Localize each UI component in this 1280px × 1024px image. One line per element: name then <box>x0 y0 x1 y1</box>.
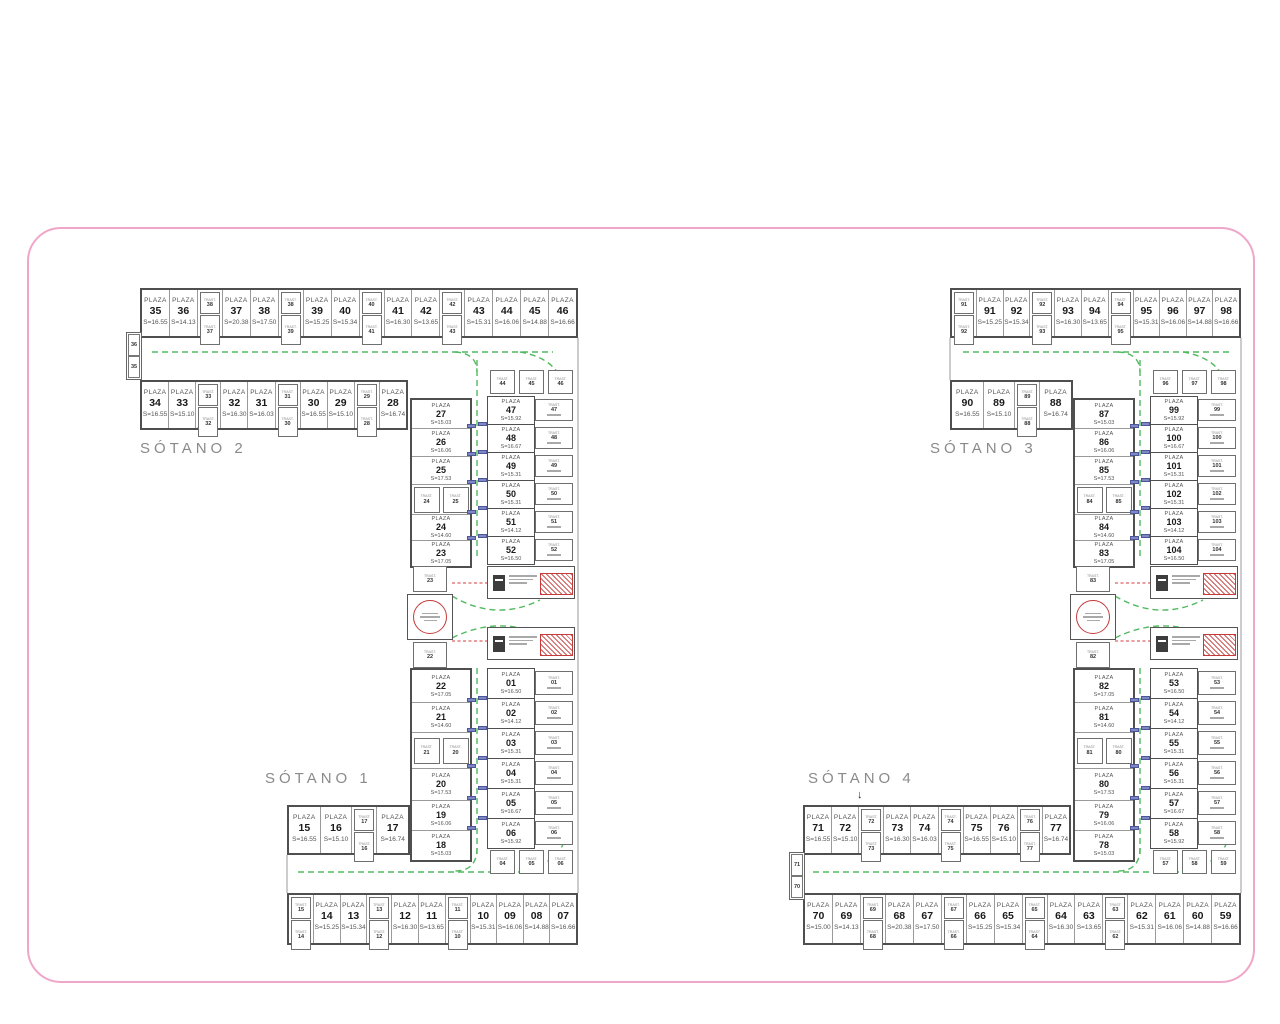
door-marker <box>1130 728 1139 732</box>
plaza-area: S=14.60 <box>431 533 452 539</box>
parking-space: PLAZA84S=14.60 <box>1075 514 1133 540</box>
storage-cell: TRAST.38TRAST.39 <box>278 290 303 336</box>
plaza-area: S=16.55 <box>292 836 316 843</box>
illegible-text <box>547 498 561 500</box>
storage-box: TRAST.32 <box>198 407 218 437</box>
plaza-area: S=15.25 <box>315 924 339 931</box>
parking-space: PLAZA50S=15.31 <box>487 480 535 509</box>
plaza-number: 37 <box>230 306 242 317</box>
parking-space: PLAZA86S=16.06 <box>1075 428 1133 456</box>
plaza-number: 12 <box>399 911 411 922</box>
plaza-number: 38 <box>258 306 270 317</box>
plaza-number: 13 <box>348 911 360 922</box>
parking-space: PLAZA04S=15.31 <box>487 758 535 789</box>
plaza-number: 42 <box>420 306 432 317</box>
plaza-word: PLAZA <box>1045 814 1068 821</box>
plaza-area: S=17.05 <box>1094 559 1115 565</box>
door-marker <box>478 506 487 510</box>
plaza-word: PLAZA <box>969 902 992 909</box>
parking-space: PLAZA44S=16.06 <box>492 290 520 336</box>
plaza-area: S=15.03 <box>1094 420 1115 426</box>
plaza-word: PLAZA <box>420 902 443 909</box>
illegible-text <box>1085 613 1101 615</box>
illegible-text <box>547 687 561 689</box>
illegible-text <box>1210 414 1224 416</box>
trast-number: 38 <box>288 302 294 308</box>
storage-box: TRAST.73 <box>861 832 881 862</box>
storage-box: TRAST.93 <box>1032 315 1052 345</box>
plaza-number: 87 <box>1099 410 1109 419</box>
plaza-area: S=17.50 <box>915 924 939 931</box>
parking-row: PLAZA71S=16.55PLAZA72S=15.10TRAST.72TRAS… <box>803 805 1071 855</box>
trast-number: 14 <box>298 934 304 940</box>
parking-space: PLAZA94S=13.65 <box>1081 290 1108 336</box>
plaza-area: S=16.30 <box>885 836 909 843</box>
storage-box: TRAST.95 <box>1111 315 1131 345</box>
storage-box: TRAST.104 <box>1198 539 1236 561</box>
trast-number: 74 <box>948 819 954 825</box>
plaza-area: S=16.06 <box>1161 319 1185 326</box>
plaza-word: PLAZA <box>1095 403 1114 409</box>
parking-space: TRAST.21TRAST.20 <box>412 732 470 768</box>
plaza-word: PLAZA <box>835 902 858 909</box>
storage-box: TRAST.88 <box>1017 407 1037 437</box>
trast-number: 69 <box>870 907 876 913</box>
plaza-number: 51 <box>506 518 516 527</box>
plaza-area: S=16.74 <box>381 411 405 418</box>
trast-number: 62 <box>1112 934 1118 940</box>
door-marker <box>467 698 476 702</box>
illegible-text <box>1083 616 1103 618</box>
plaza-area: S=13.65 <box>419 924 443 931</box>
illegible-text <box>1172 579 1196 581</box>
plaza-number: 54 <box>1169 709 1179 718</box>
parking-space: PLAZA96S=16.06 <box>1159 290 1186 336</box>
storage-box: TRAST.51 <box>535 511 573 533</box>
parking-space: PLAZA70S=15.00 <box>805 895 832 943</box>
parking-space: PLAZA14S=15.25 <box>313 895 340 943</box>
plaza-area: S=16.06 <box>498 924 522 931</box>
storage-box: TRAST.56 <box>1198 761 1236 785</box>
parking-space: PLAZA90S=16.55 <box>952 382 983 428</box>
illegible-text <box>509 575 537 577</box>
plaza-number: 84 <box>1099 523 1109 532</box>
plaza-word: PLAZA <box>551 297 574 304</box>
door-marker <box>1141 786 1150 790</box>
plaza-number: 25 <box>436 466 446 475</box>
parking-space: PLAZA53S=16.50 <box>1150 668 1198 699</box>
plaza-area: S=14.60 <box>1094 723 1115 729</box>
plaza-number: 05 <box>506 799 516 808</box>
trast-number: 99 <box>1214 407 1220 413</box>
parking-row: TRAST.91TRAST.92PLAZA91S=15.25PLAZA92S=1… <box>950 288 1241 338</box>
storage-box: 70 <box>791 876 803 898</box>
stair-room <box>1150 627 1238 660</box>
door-marker <box>1141 534 1150 538</box>
trast-number: 06 <box>551 830 557 836</box>
parking-space: PLAZA100S=16.67 <box>1150 424 1198 453</box>
parking-space: PLAZA47S=15.92 <box>487 396 535 425</box>
parking-space: PLAZA41S=16.30 <box>384 290 412 336</box>
trast-number: 42 <box>449 302 455 308</box>
trast-number: 41 <box>368 329 374 335</box>
illegible-text <box>1210 470 1224 472</box>
storage-cell: TRAST.94TRAST.95 <box>1108 290 1133 336</box>
door-marker <box>467 452 476 456</box>
plaza-number: 03 <box>506 739 516 748</box>
plaza-area: S=15.31 <box>1164 749 1185 755</box>
storage-box: TRAST.03 <box>535 731 573 755</box>
plaza-area: S=14.13 <box>834 924 858 931</box>
parking-space: PLAZA22S=17.05 <box>412 670 470 702</box>
storage-cell: TRAST.31TRAST.30 <box>275 382 300 428</box>
plaza-word: PLAZA <box>1095 675 1114 681</box>
trast-number: 33 <box>205 394 211 400</box>
illegible-text <box>509 582 527 584</box>
trast-number: 98 <box>1220 381 1226 387</box>
plaza-area: S=17.05 <box>431 559 452 565</box>
plaza-area: S=17.53 <box>1094 476 1115 482</box>
storage-box: TRAST.81 <box>1077 738 1103 764</box>
plaza-number: 63 <box>1083 911 1095 922</box>
illegible-text <box>1210 837 1224 839</box>
illegible-text <box>1210 554 1224 556</box>
door-marker <box>1130 424 1139 428</box>
trast-number: 38 <box>207 302 213 308</box>
door-marker <box>1141 756 1150 760</box>
plaza-word: PLAZA <box>472 902 495 909</box>
storage-cell: TRAST.69TRAST.68 <box>860 895 885 943</box>
illegible-text <box>509 643 527 645</box>
door-marker <box>467 764 476 768</box>
plaza-area: S=16.67 <box>501 809 522 815</box>
plaza-number: 22 <box>436 682 446 691</box>
plaza-word: PLAZA <box>382 389 405 396</box>
storage-box: TRAST.23 <box>413 566 447 592</box>
storage-cell: TRAST.72TRAST.73 <box>858 807 883 853</box>
plaza-area: S=17.05 <box>431 692 452 698</box>
plaza-area: S=15.00 <box>806 924 830 931</box>
parking-row: PLAZA35S=16.55PLAZA36S=14.13TRAST.38TRAS… <box>140 288 578 338</box>
parking-space: PLAZA30S=16.55 <box>300 382 327 428</box>
stair-room <box>487 627 575 660</box>
plaza-area: S=16.03 <box>249 411 273 418</box>
door-marker <box>478 534 487 538</box>
door-marker <box>1130 480 1139 484</box>
plaza-number: 18 <box>436 841 446 850</box>
plaza-number: 35 <box>150 306 162 317</box>
trast-number: 10 <box>454 934 460 940</box>
stairs-hatch-icon <box>540 634 573 656</box>
parking-space: PLAZA13S=15.34 <box>340 895 367 943</box>
trast-number: 75 <box>948 846 954 852</box>
plaza-word: PLAZA <box>1078 902 1101 909</box>
parking-column: PLAZA27S=15.03PLAZA26S=16.06PLAZA25S=17.… <box>410 398 472 568</box>
plaza-area: S=16.55 <box>143 319 167 326</box>
trast-number: 93 <box>1039 329 1045 335</box>
plaza-number: 92 <box>1011 306 1023 317</box>
plaza-number: 08 <box>531 911 543 922</box>
plaza-number: 30 <box>308 398 320 409</box>
illegible-text <box>547 747 561 749</box>
parking-space: PLAZA48S=16.67 <box>487 424 535 453</box>
plaza-number: 14 <box>321 911 333 922</box>
plaza-number: 46 <box>557 306 569 317</box>
parking-space: PLAZA39S=15.25 <box>303 290 331 336</box>
plaza-area: S=14.12 <box>1164 528 1185 534</box>
parking-space: PLAZA08S=14.88 <box>523 895 550 943</box>
parking-space: PLAZA28S=16.74 <box>379 382 406 428</box>
plaza-area: S=16.66 <box>1213 924 1237 931</box>
plaza-word: PLAZA <box>1214 902 1237 909</box>
plaza-word: PLAZA <box>1044 389 1067 396</box>
trast-number: 65 <box>1031 907 1037 913</box>
plaza-area: S=14.13 <box>171 319 195 326</box>
trast-number: 39 <box>288 329 294 335</box>
plaza-word: PLAZA <box>834 814 857 821</box>
trast-number: 73 <box>868 846 874 852</box>
storage-box: TRAST.82 <box>1076 642 1110 668</box>
parking-space: PLAZA69S=14.13 <box>832 895 860 943</box>
lobby-room <box>1070 594 1116 640</box>
plaza-word: PLAZA <box>172 297 195 304</box>
plaza-number: 48 <box>506 434 516 443</box>
plaza-word: PLAZA <box>250 389 273 396</box>
parking-space: PLAZA43S=15.31 <box>464 290 492 336</box>
trast-number: 59 <box>1220 861 1226 867</box>
plaza-number: 67 <box>921 911 933 922</box>
plaza-number: 11 <box>426 911 437 922</box>
plaza-area: S=16.06 <box>1158 924 1182 931</box>
trast-number: 100 <box>1212 435 1221 441</box>
plaza-area: S=16.55 <box>301 411 325 418</box>
storage-box: TRAST.102 <box>1198 483 1236 505</box>
parking-space: PLAZA74S=16.03 <box>910 807 937 853</box>
plaza-word: PLAZA <box>1005 297 1028 304</box>
storage-cell: TRAST.65TRAST.64 <box>1022 895 1047 943</box>
trast-number: 63 <box>1112 907 1118 913</box>
parking-space: PLAZA45S=14.88 <box>520 290 548 336</box>
plaza-number: 19 <box>436 811 446 820</box>
trast-number: 89 <box>1024 394 1030 400</box>
plaza-word: PLAZA <box>342 902 365 909</box>
door-marker <box>1130 796 1139 800</box>
storage-box: TRAST.92 <box>954 315 974 345</box>
storage-box: TRAST.24 <box>414 487 440 513</box>
plaza-area: S=15.25 <box>305 319 329 326</box>
door-marker <box>478 696 487 700</box>
parking-space: PLAZA10S=15.31 <box>470 895 497 943</box>
parking-space: PLAZA18S=15.03 <box>412 830 470 860</box>
plaza-number: 83 <box>1099 549 1109 558</box>
plaza-number: 36 <box>178 306 190 317</box>
storage-box: TRAST.43 <box>442 315 462 345</box>
storage-annex: 7170 <box>789 852 805 900</box>
entrance-arrow-icon: ↓ <box>857 790 863 801</box>
plaza-word: PLAZA <box>325 814 348 821</box>
plaza-area: S=15.03 <box>431 851 452 857</box>
parking-space: TRAST.81TRAST.80 <box>1075 732 1133 768</box>
storage-box: TRAST.42 <box>442 292 462 314</box>
parking-space: PLAZA58S=15.92 <box>1150 818 1198 849</box>
plaza-word: PLAZA <box>913 814 936 821</box>
parking-space: PLAZA79S=16.06 <box>1075 800 1133 830</box>
plaza-number: 101 <box>1166 462 1181 471</box>
plaza-area: S=15.31 <box>1134 319 1158 326</box>
parking-space: PLAZA82S=17.05 <box>1075 670 1133 702</box>
parking-space: PLAZA91S=15.25 <box>976 290 1003 336</box>
plaza-word: PLAZA <box>888 902 911 909</box>
storage-box: TRAST.48 <box>535 427 573 449</box>
plaza-word: PLAZA <box>886 814 909 821</box>
parking-space: PLAZA06S=15.92 <box>487 818 535 849</box>
door-marker <box>467 536 476 540</box>
trast-number: 104 <box>1212 547 1221 553</box>
trast-number: 49 <box>551 463 557 469</box>
storage-box: TRAST.49 <box>535 455 573 477</box>
plaza-area: S=15.25 <box>978 319 1002 326</box>
plaza-word: PLAZA <box>144 389 167 396</box>
door-marker <box>1130 698 1139 702</box>
parking-space: PLAZA68S=20.38 <box>885 895 913 943</box>
parking-space: PLAZA52S=16.50 <box>487 536 535 565</box>
trast-number: 44 <box>499 381 505 387</box>
plaza-number: 69 <box>841 911 853 922</box>
storage-box: TRAST.62 <box>1105 920 1125 950</box>
storage-box: TRAST.64 <box>1025 920 1045 950</box>
trast-number: 56 <box>1214 770 1220 776</box>
illegible-text <box>1210 717 1224 719</box>
plaza-area: S=15.92 <box>501 839 522 845</box>
storage-box: TRAST.54 <box>1198 701 1236 725</box>
trast-number: 97 <box>1191 381 1197 387</box>
storage-cell: TRAST.91TRAST.92 <box>952 290 976 336</box>
plaza-number: 90 <box>961 398 973 409</box>
plaza-area: S=15.31 <box>501 472 522 478</box>
storage-cell: TRAST.63TRAST.62 <box>1102 895 1127 943</box>
plaza-number: 99 <box>1169 406 1179 415</box>
storage-box: TRAST.46 <box>548 370 573 394</box>
plaza-area: S=15.31 <box>1164 779 1185 785</box>
storage-box: TRAST.69 <box>863 897 883 919</box>
storage-box: TRAST.06 <box>548 850 573 874</box>
plaza-number: 31 <box>256 398 268 409</box>
door-marker <box>467 796 476 800</box>
trast-number: 58 <box>1214 830 1220 836</box>
parking-space: PLAZA49S=15.31 <box>487 452 535 481</box>
parking-space: PLAZA62S=15.31 <box>1127 895 1155 943</box>
plaza-word: PLAZA <box>334 297 357 304</box>
parking-space: PLAZA60S=14.88 <box>1183 895 1211 943</box>
trast-number: 84 <box>1086 499 1092 505</box>
plaza-word: PLAZA <box>956 389 979 396</box>
plaza-word: PLAZA <box>415 297 438 304</box>
plaza-word: PLAZA <box>1188 297 1211 304</box>
plaza-number: 59 <box>1220 911 1232 922</box>
trast-number: 23 <box>427 578 433 584</box>
door-marker <box>478 726 487 730</box>
plaza-word: PLAZA <box>916 902 939 909</box>
storage-box: TRAST.55 <box>1198 731 1236 755</box>
parking-space: PLAZA20S=17.53 <box>412 768 470 800</box>
plaza-number: 86 <box>1099 438 1109 447</box>
door-marker <box>478 422 487 426</box>
parking-column: PLAZA22S=17.05PLAZA21S=14.60TRAST.21TRAS… <box>410 668 472 862</box>
storage-box: TRAST.05 <box>519 850 544 874</box>
illegible-text <box>1210 687 1224 689</box>
trast-number: 35 <box>131 364 137 370</box>
illegible-text <box>547 470 561 472</box>
storage-box: TRAST.04 <box>490 850 515 874</box>
parking-space: PLAZA71S=16.55 <box>805 807 831 853</box>
illegible-text <box>422 613 438 615</box>
trast-number: 102 <box>1212 491 1221 497</box>
plaza-area: S=16.06 <box>495 319 519 326</box>
trast-number: 45 <box>528 381 534 387</box>
plaza-number: 82 <box>1099 682 1109 691</box>
plaza-number: 21 <box>436 713 446 722</box>
parking-space: PLAZA78S=15.03 <box>1075 830 1133 860</box>
storage-box: TRAST.16 <box>354 832 374 862</box>
elevator-icon <box>1156 636 1168 652</box>
storage-box: TRAST.44 <box>490 370 515 394</box>
plaza-area: S=16.55 <box>964 836 988 843</box>
plaza-area: S=16.67 <box>1164 444 1185 450</box>
parking-space: PLAZA16S=15.10 <box>320 807 352 853</box>
plaza-number: 24 <box>436 523 446 532</box>
plaza-number: 97 <box>1194 306 1206 317</box>
plaza-number: 73 <box>892 823 904 834</box>
storage-box: TRAST.20 <box>443 738 469 764</box>
plaza-area: S=15.34 <box>996 924 1020 931</box>
plaza-number: 78 <box>1099 841 1109 850</box>
plaza-number: 26 <box>436 438 446 447</box>
trast-number: 83 <box>1090 578 1096 584</box>
plaza-number: 61 <box>1164 911 1176 922</box>
parking-space: PLAZA03S=15.31 <box>487 728 535 759</box>
parking-space: PLAZA19S=16.06 <box>412 800 470 830</box>
parking-space: PLAZA63S=13.65 <box>1074 895 1102 943</box>
plaza-area: S=15.10 <box>324 836 348 843</box>
door-marker <box>478 816 487 820</box>
plaza-number: 27 <box>436 410 446 419</box>
plaza-area: S=14.12 <box>501 719 522 725</box>
plaza-area: S=15.31 <box>501 500 522 506</box>
trast-number: 55 <box>1214 740 1220 746</box>
plaza-number: 91 <box>984 306 996 317</box>
storage-box: TRAST.85 <box>1106 487 1132 513</box>
storage-box: 36 <box>128 334 140 356</box>
plaza-area: S=13.65 <box>414 319 438 326</box>
plaza-area: S=17.53 <box>1094 790 1115 796</box>
plaza-area: S=16.30 <box>386 319 410 326</box>
storage-cell: TRAST.76TRAST.77 <box>1017 807 1042 853</box>
storage-box: TRAST.21 <box>414 738 440 764</box>
parking-space: PLAZA102S=15.31 <box>1150 480 1198 509</box>
plaza-number: 53 <box>1169 679 1179 688</box>
storage-cell: TRAST.33TRAST.32 <box>195 382 220 428</box>
parking-space: PLAZA56S=15.31 <box>1150 758 1198 789</box>
storage-cell: TRAST.13TRAST.12 <box>366 895 391 943</box>
plaza-number: 52 <box>506 546 516 555</box>
plaza-area: S=15.31 <box>1164 472 1185 478</box>
plaza-number: 40 <box>339 306 351 317</box>
plaza-area: S=17.05 <box>1094 692 1115 698</box>
parking-space: PLAZA26S=16.06 <box>412 428 470 456</box>
plaza-number: 62 <box>1136 911 1148 922</box>
illegible-text <box>547 526 561 528</box>
parking-space: PLAZA42S=13.65 <box>411 290 439 336</box>
